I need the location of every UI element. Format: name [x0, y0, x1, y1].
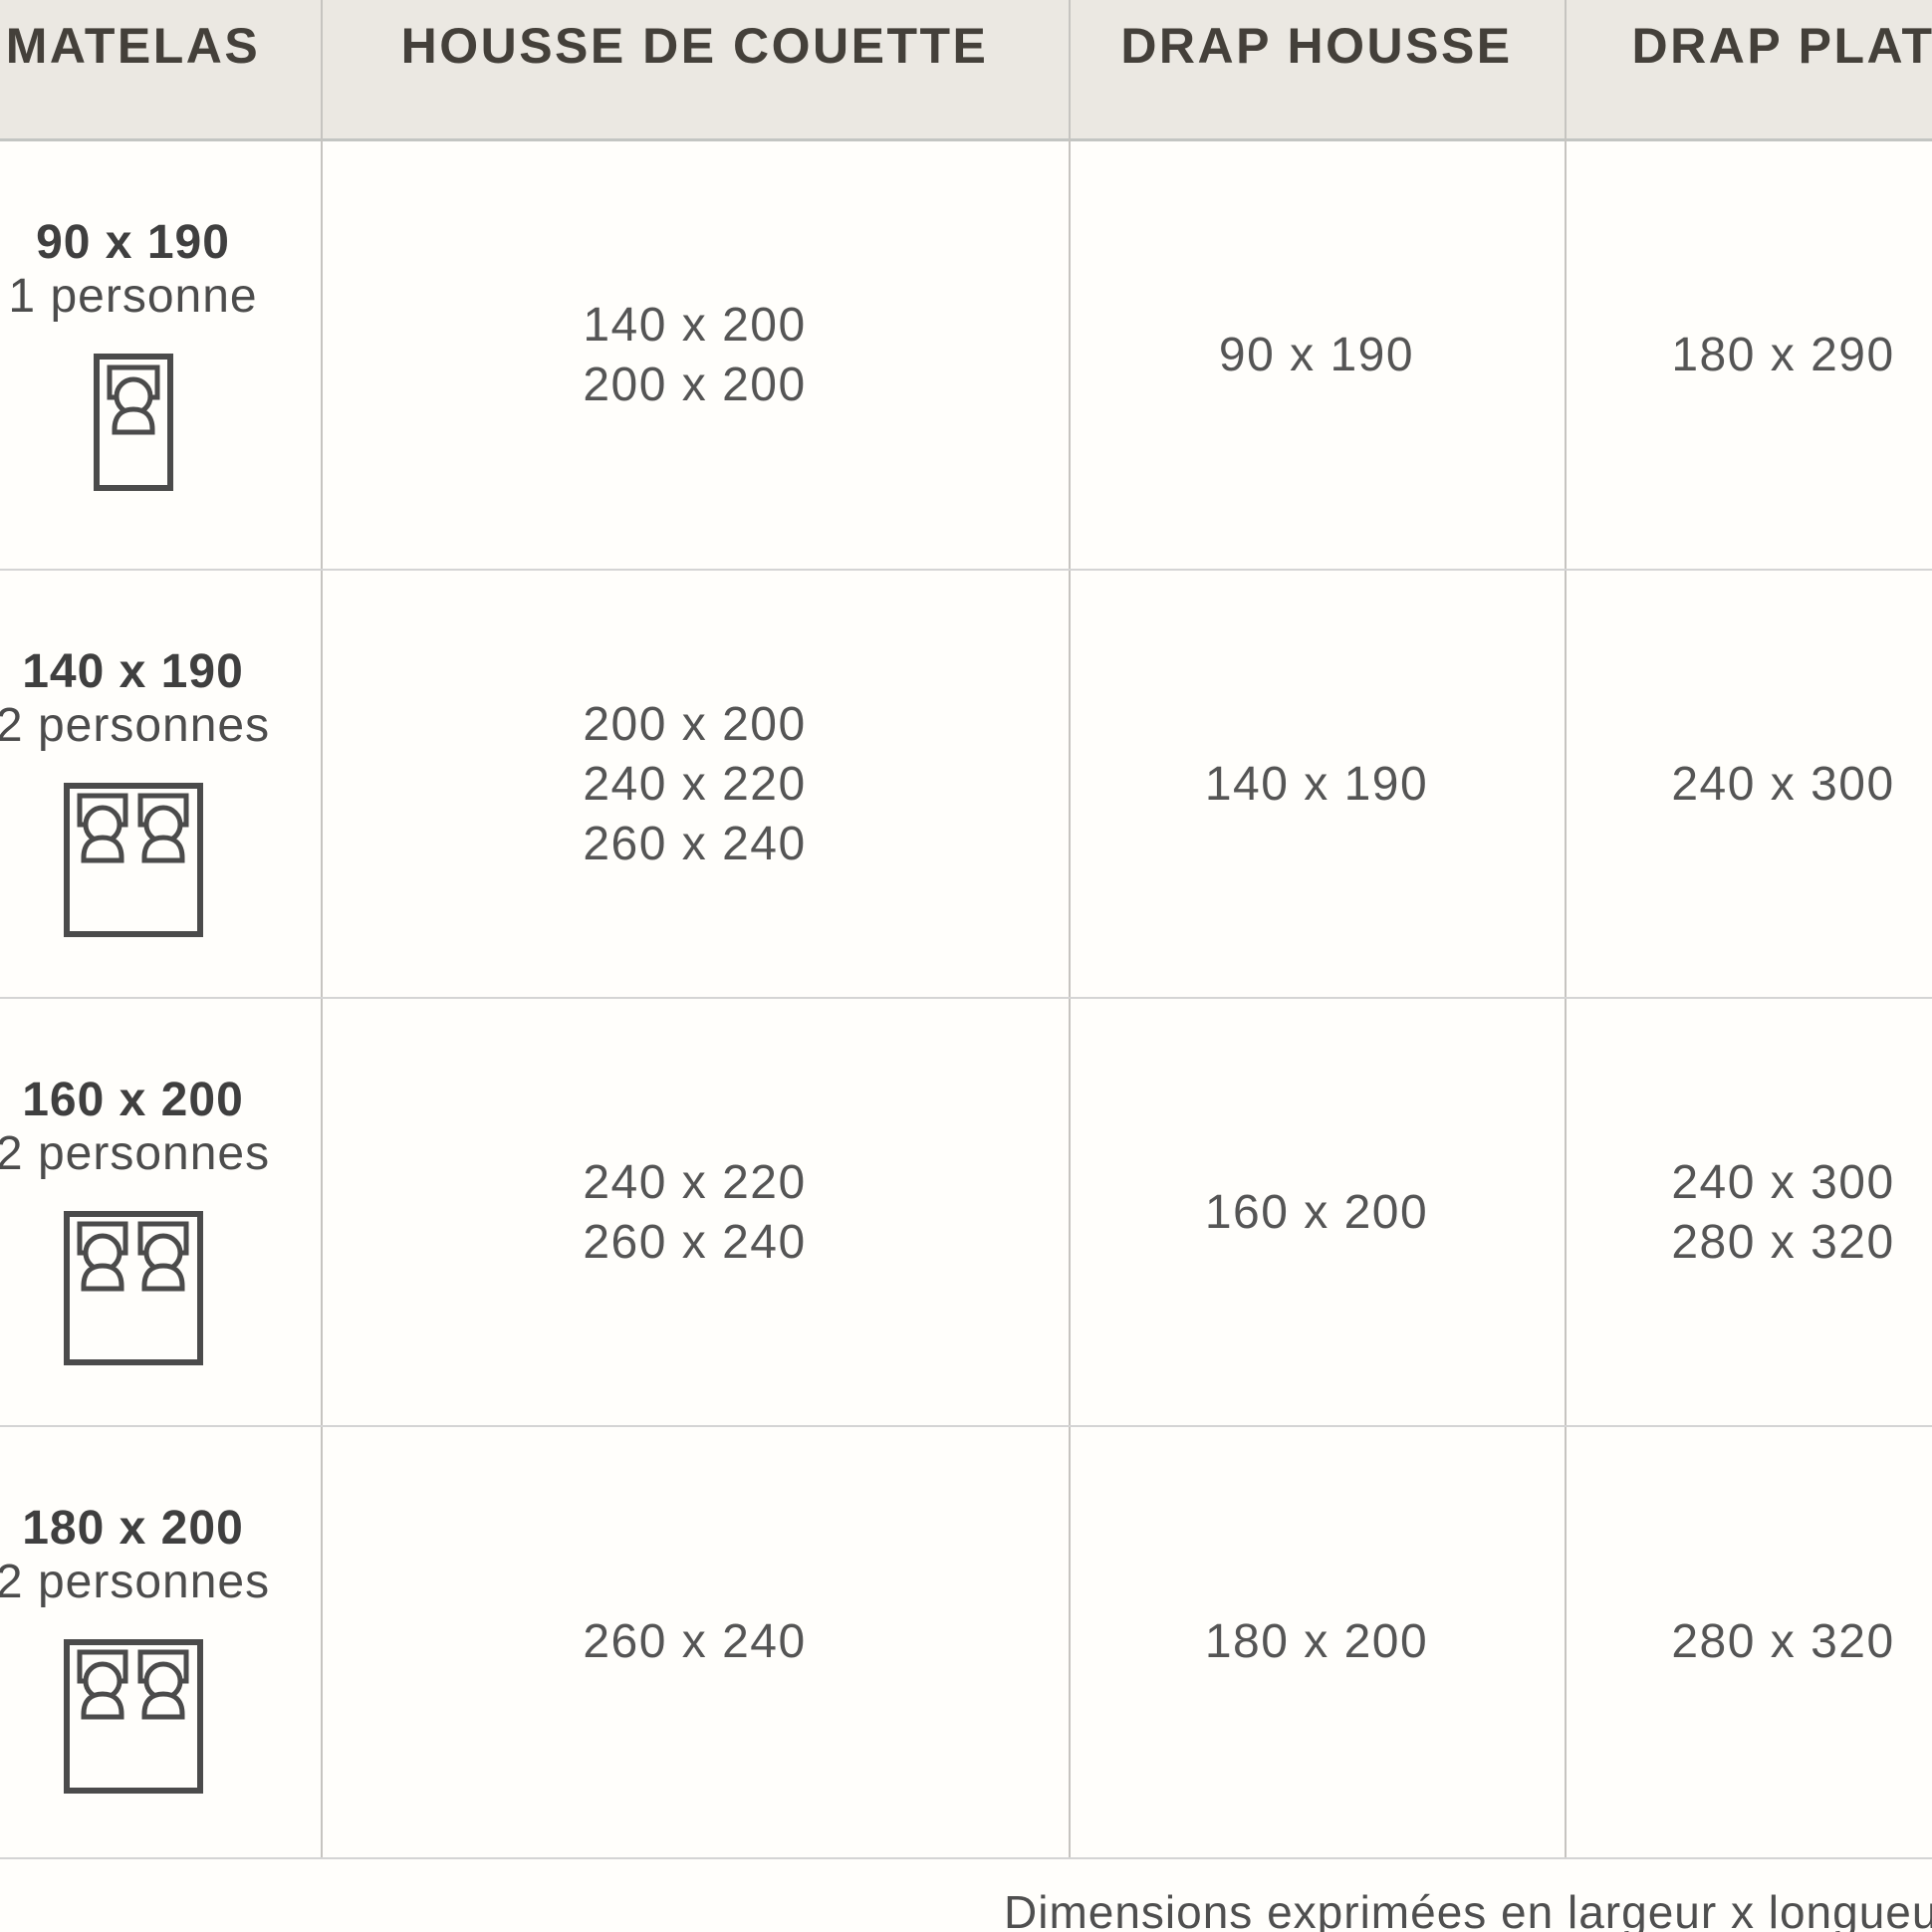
mattress-size-label: 180 x 200: [22, 1504, 244, 1554]
size-value: 160 x 200: [1205, 1183, 1428, 1243]
column-header-drap-housse: DRAP HOUSSE: [1069, 0, 1565, 92]
matelas-cell: 140 x 190 2 personnes: [0, 571, 321, 999]
double-bed-icon: [63, 1210, 204, 1366]
size-value: 200 x 200: [583, 356, 806, 415]
size-value: 90 x 190: [1219, 326, 1414, 385]
drap-housse-cell: 140 x 190: [1069, 571, 1565, 999]
mattress-size-label: 90 x 190: [36, 218, 230, 268]
double-bed-icon: [63, 1638, 204, 1795]
capacity-label: 2 personnes: [0, 1554, 270, 1611]
housse-de-couette-cell: 260 x 240: [321, 1427, 1069, 1857]
matelas-cell: 90 x 190 1 personne: [0, 141, 321, 570]
drap-housse-cell: 90 x 190: [1069, 141, 1565, 570]
column-header-matelas: MATELAS: [0, 0, 321, 92]
size-value: 280 x 320: [1671, 1213, 1894, 1273]
mattress-size-label: 160 x 200: [22, 1076, 244, 1125]
bedding-size-guide-table: MATELAS HOUSSE DE COUETTE DRAP HOUSSE DR…: [0, 0, 1932, 1932]
size-value: 140 x 200: [583, 296, 806, 356]
column-header-housse-de-couette: HOUSSE DE COUETTE: [321, 0, 1069, 92]
size-value: 280 x 320: [1671, 1612, 1894, 1672]
size-value: 260 x 240: [583, 1213, 806, 1273]
size-value: 200 x 200: [583, 695, 806, 755]
housse-de-couette-cell: 140 x 200 200 x 200: [321, 141, 1069, 570]
dimensions-footnote: Dimensions exprimées en largeur x longue…: [1004, 1885, 1932, 1932]
drap-plat-cell: 280 x 320: [1565, 1427, 1932, 1857]
size-value: 260 x 240: [583, 1612, 806, 1672]
table-bottom-border: [0, 1857, 1932, 1859]
drap-housse-cell: 160 x 200: [1069, 999, 1565, 1427]
drap-plat-cell: 240 x 300 280 x 320: [1565, 999, 1932, 1427]
capacity-label: 2 personnes: [0, 1125, 270, 1183]
drap-plat-cell: 240 x 300: [1565, 571, 1932, 999]
housse-de-couette-cell: 200 x 200 240 x 220 260 x 240: [321, 571, 1069, 999]
size-value: 240 x 300: [1671, 1153, 1894, 1213]
housse-de-couette-cell: 240 x 220 260 x 240: [321, 999, 1069, 1427]
capacity-label: 1 personne: [8, 268, 257, 326]
size-value: 240 x 220: [583, 755, 806, 815]
size-value: 180 x 200: [1205, 1612, 1428, 1672]
matelas-cell: 160 x 200 2 personnes: [0, 999, 321, 1427]
size-value: 180 x 290: [1671, 326, 1894, 385]
drap-housse-cell: 180 x 200: [1069, 1427, 1565, 1857]
matelas-cell: 180 x 200 2 personnes: [0, 1427, 321, 1855]
size-value: 140 x 190: [1205, 755, 1428, 815]
double-bed-icon: [63, 782, 204, 938]
capacity-label: 2 personnes: [0, 697, 270, 755]
drap-plat-cell: 180 x 290: [1565, 141, 1932, 570]
size-value: 260 x 240: [583, 815, 806, 874]
column-header-drap-plat: DRAP PLAT: [1565, 0, 1932, 92]
single-bed-icon: [93, 353, 174, 492]
size-value: 240 x 220: [583, 1153, 806, 1213]
size-value: 240 x 300: [1671, 755, 1894, 815]
mattress-size-label: 140 x 190: [22, 647, 244, 697]
